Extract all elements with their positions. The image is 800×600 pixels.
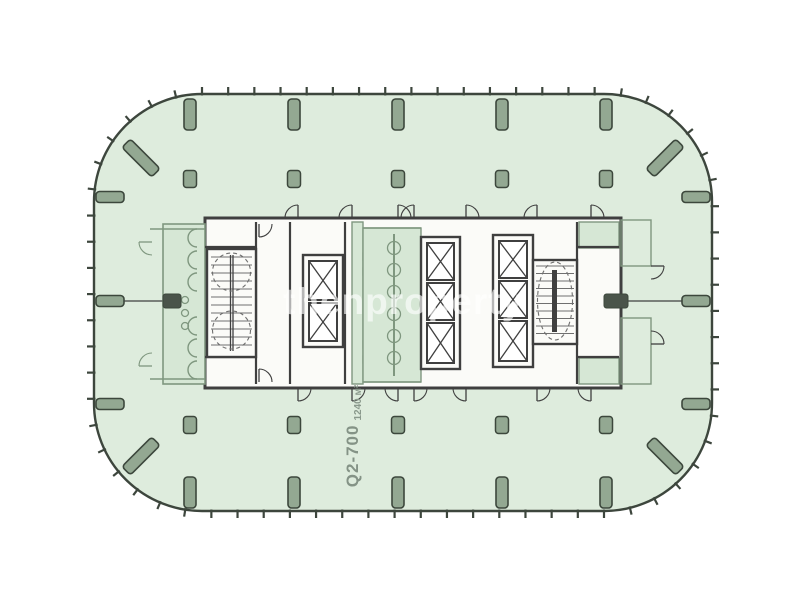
unit-id-text: Q2-700 — [343, 425, 363, 488]
unit-label: Q2-700 1240 м² — [319, 371, 387, 501]
floor-plan-page: thenproperty Q2-700 1240 м² — [0, 0, 800, 600]
unit-area-text: 1240 м² — [353, 385, 364, 421]
floor-plan-drawing — [0, 0, 800, 600]
